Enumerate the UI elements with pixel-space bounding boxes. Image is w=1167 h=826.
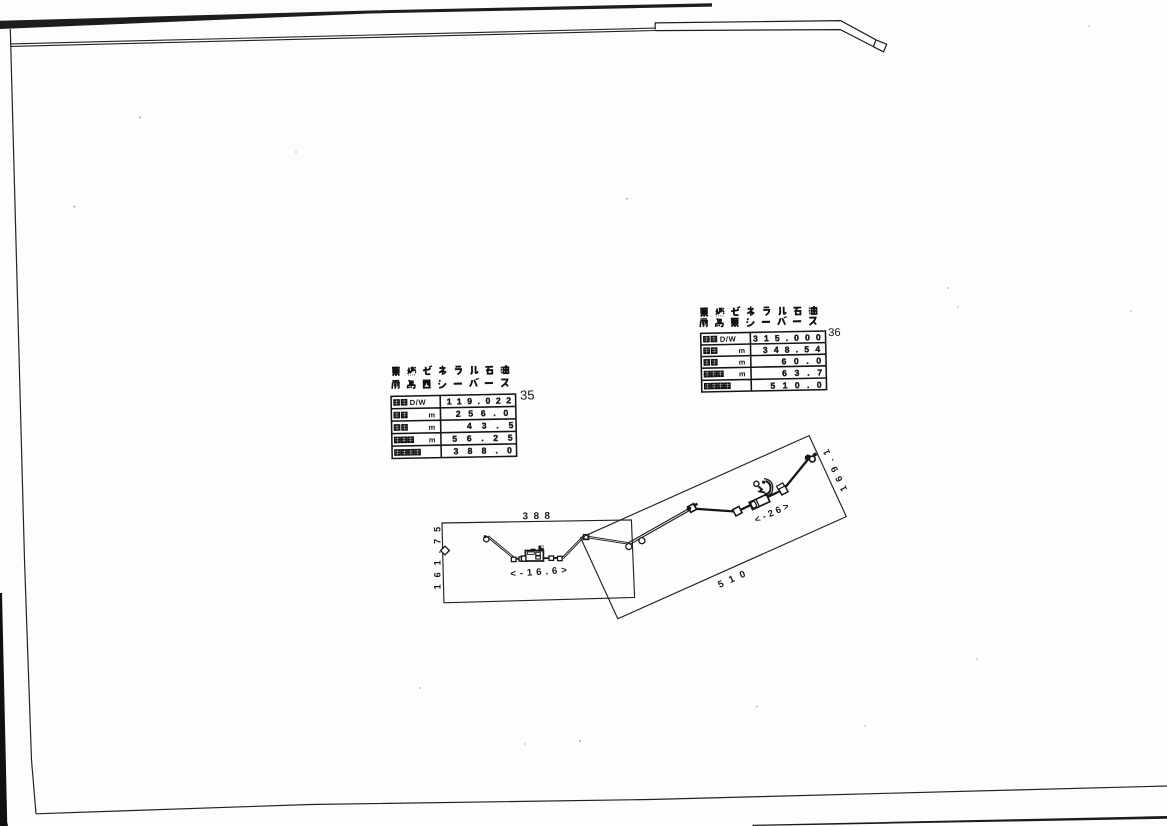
svg-text:35: 35 <box>520 387 535 402</box>
svg-text:119.022: 119.022 <box>447 395 517 406</box>
svg-text:161.75: 161.75 <box>432 520 442 590</box>
svg-text:388.0: 388.0 <box>453 445 521 456</box>
svg-text:m: m <box>429 423 436 432</box>
svg-text:388: 388 <box>523 511 556 523</box>
svg-text:m: m <box>739 358 746 367</box>
svg-text:256.0: 256.0 <box>456 408 516 419</box>
svg-text:m: m <box>739 369 746 378</box>
svg-text:D/W: D/W <box>410 398 427 407</box>
svg-text:43.5: 43.5 <box>467 420 524 431</box>
svg-text:348.54: 348.54 <box>763 344 827 355</box>
svg-text:315.000: 315.000 <box>753 332 827 343</box>
svg-text:m: m <box>738 346 745 355</box>
svg-text:60.0: 60.0 <box>781 355 828 366</box>
svg-text:36: 36 <box>828 327 841 339</box>
svg-text:510.0: 510.0 <box>770 380 829 391</box>
svg-text:m: m <box>428 410 435 419</box>
svg-text:D/W: D/W <box>720 335 737 344</box>
svg-text:56.25: 56.25 <box>452 432 522 443</box>
svg-text:m: m <box>429 435 436 444</box>
svg-text:63.7: 63.7 <box>782 367 830 378</box>
